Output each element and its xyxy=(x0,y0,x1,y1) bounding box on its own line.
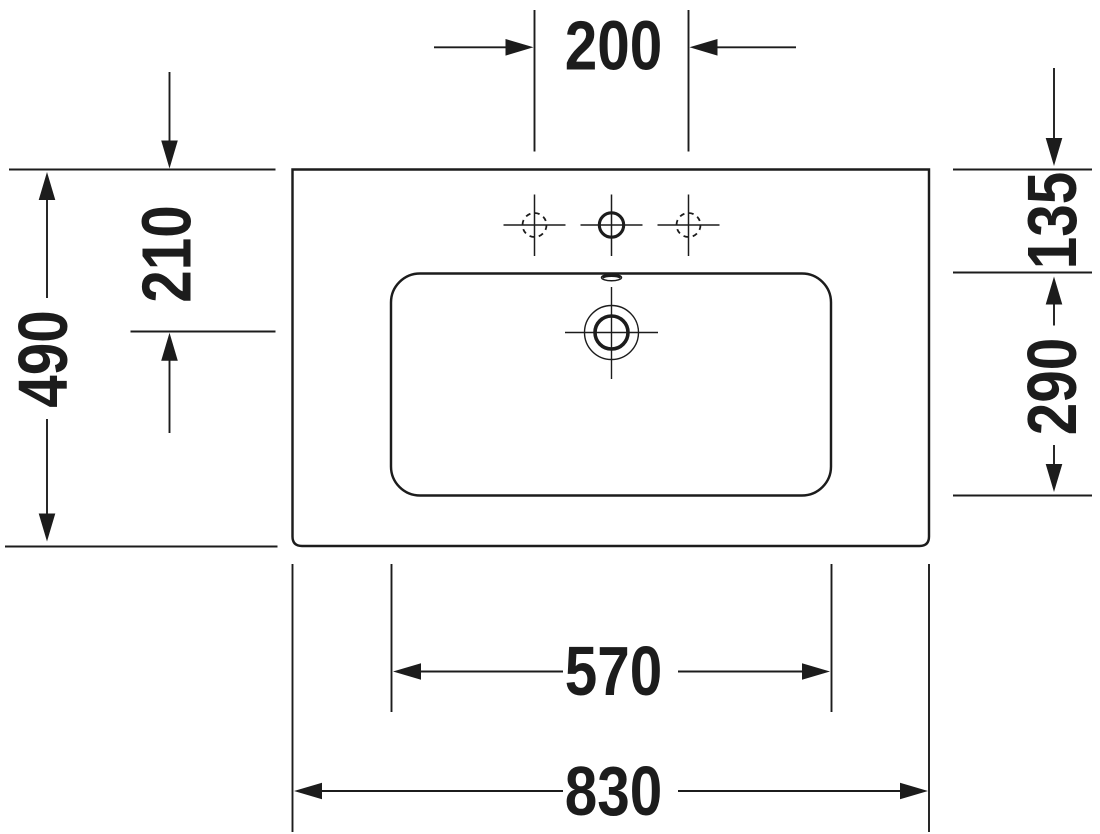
svg-text:490: 490 xyxy=(4,310,82,408)
svg-text:570: 570 xyxy=(565,632,663,710)
svg-text:290: 290 xyxy=(1013,338,1091,436)
svg-text:210: 210 xyxy=(128,205,206,303)
svg-text:135: 135 xyxy=(1013,172,1091,270)
svg-text:200: 200 xyxy=(565,7,663,85)
svg-text:830: 830 xyxy=(565,752,663,830)
